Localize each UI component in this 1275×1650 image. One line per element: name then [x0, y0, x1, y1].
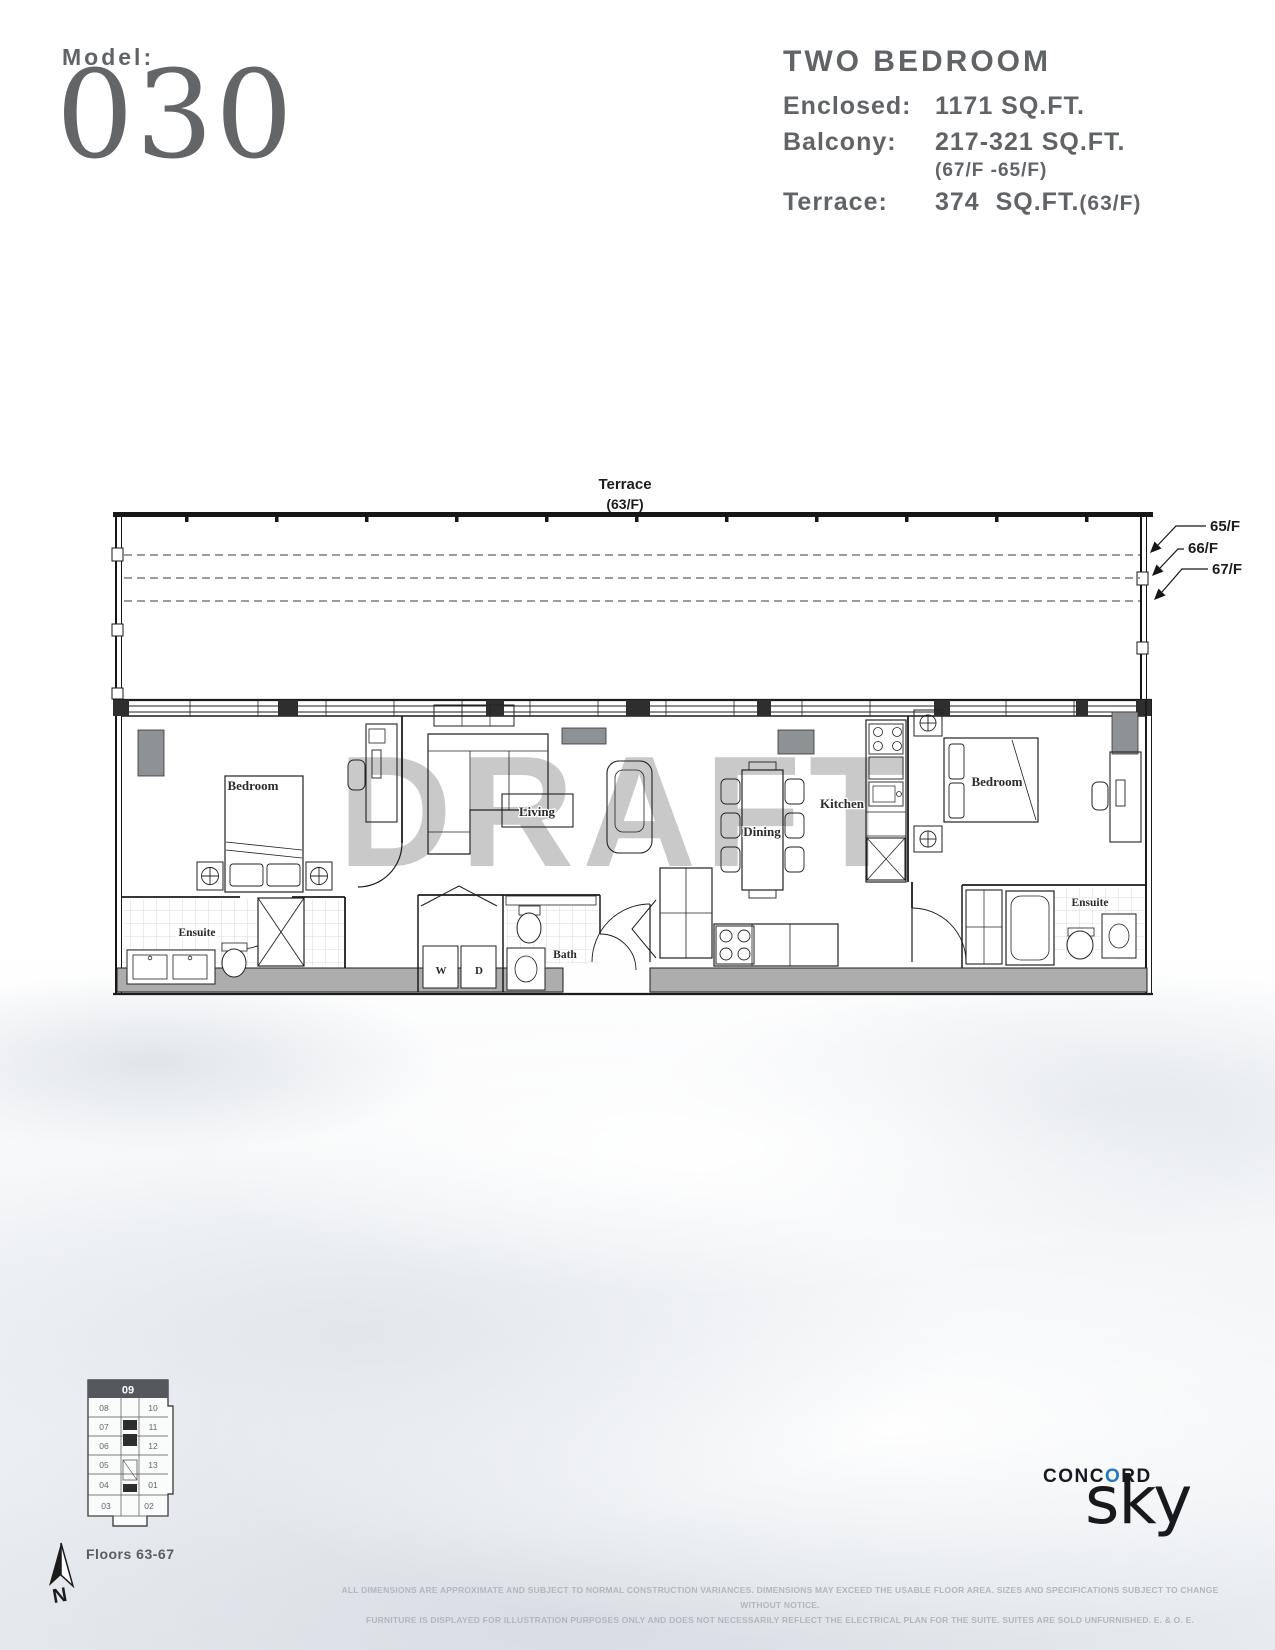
bathtub: [1006, 891, 1054, 965]
enclosed-label: Enclosed:: [783, 92, 935, 121]
balcony-value: 217-321 SQ.FT.: [935, 128, 1125, 157]
terrace-note: (63/F): [1079, 192, 1141, 215]
unit-type-title: TWO BEDROOM: [783, 45, 1051, 79]
disclaimer: ALL DIMENSIONS ARE APPROXIMATE AND SUBJE…: [340, 1583, 1220, 1628]
label-dryer: D: [475, 965, 483, 977]
level-66: 66/F: [1188, 540, 1218, 557]
terrace-label: Terrace:: [783, 188, 935, 217]
cloud-background: [0, 950, 1275, 1650]
toilet-bath: [517, 913, 541, 943]
label-bath: Bath: [553, 949, 577, 961]
key-plan: 09 0810 0711 0612 0513 0401 0302: [83, 1376, 179, 1538]
terrace-value: 374 SQ.FT.(63/F): [935, 188, 1141, 217]
sky-wordmark: sky: [1085, 1470, 1191, 1533]
floor-plan-drawing: DRAFT Terrace (63/F): [105, 440, 1265, 1000]
desk-right: [1110, 752, 1141, 842]
floorplan-page: Model: 030 TWO BEDROOM Enclosed: 1171 SQ…: [0, 0, 1275, 1650]
label-washer: W: [436, 965, 447, 977]
desk-chair-right: [1092, 782, 1108, 810]
spec-table: Enclosed: 1171 SQ.FT. Balcony: 217-321 S…: [783, 92, 1223, 224]
draft-watermark: DRAFT: [338, 724, 913, 900]
svg-text:07: 07: [99, 1422, 109, 1432]
label-ensuite-left: Ensuite: [178, 927, 215, 939]
terrace-ticks: [185, 517, 1089, 522]
balcony-label: Balcony:: [783, 128, 935, 157]
disclaimer-line-1: ALL DIMENSIONS ARE APPROXIMATE AND SUBJE…: [340, 1583, 1220, 1613]
spec-row-terrace: Terrace: 374 SQ.FT.(63/F): [783, 188, 1223, 217]
wall-segments: [113, 700, 1152, 716]
lamp-symbols: [202, 868, 328, 885]
toilet-left: [222, 949, 246, 977]
svg-text:11: 11: [149, 1422, 158, 1432]
svg-text:08: 08: [99, 1403, 109, 1413]
toilet-right: [1067, 931, 1093, 959]
svg-text:01: 01: [148, 1480, 158, 1490]
level-leader-lines: [1158, 526, 1208, 592]
terrace-label: Terrace (63/F): [598, 476, 651, 512]
level-callouts: 65/F 66/F 67/F: [1150, 518, 1242, 600]
svg-text:04: 04: [99, 1480, 109, 1490]
label-dining: Dining: [743, 824, 781, 839]
level-65: 65/F: [1210, 518, 1240, 535]
svg-text:06: 06: [99, 1441, 109, 1451]
north-label: N: [51, 1584, 69, 1606]
spec-row-balcony: Balcony: 217-321 SQ.FT.: [783, 128, 1223, 157]
keyplan-unit-09: 09: [122, 1385, 134, 1397]
label-ensuite-right: Ensuite: [1071, 897, 1108, 909]
label-bedroom-right: Bedroom: [971, 774, 1022, 789]
bed-left: [225, 776, 303, 892]
enclosed-value: 1171 SQ.FT.: [935, 92, 1085, 121]
spec-row-enclosed: Enclosed: 1171 SQ.FT.: [783, 92, 1223, 121]
svg-text:(63/F): (63/F): [606, 496, 643, 512]
svg-text:02: 02: [144, 1501, 154, 1511]
svg-text:05: 05: [99, 1460, 109, 1470]
kitchen-counter: [714, 924, 838, 966]
svg-text:Terrace: Terrace: [598, 476, 651, 493]
lamp-symbols: [920, 715, 936, 847]
floors-range-label: Floors 63-67: [86, 1546, 174, 1562]
north-arrow-icon: N: [40, 1540, 84, 1606]
level-67: 67/F: [1212, 561, 1242, 578]
terrace-level-lines: [124, 555, 1140, 601]
svg-text:03: 03: [101, 1501, 111, 1511]
vanity-right: [1102, 914, 1136, 958]
svg-text:13: 13: [148, 1460, 158, 1470]
svg-text:10: 10: [148, 1403, 158, 1413]
disclaimer-line-2: FURNITURE IS DISPLAYED FOR ILLUSTRATION …: [340, 1613, 1220, 1628]
label-bedroom-left: Bedroom: [227, 778, 278, 793]
balcony-note: (67/F -65/F): [935, 160, 1223, 182]
svg-text:12: 12: [148, 1441, 158, 1451]
label-kitchen: Kitchen: [820, 796, 865, 811]
bath-vanity: [507, 948, 545, 990]
label-living: Living: [519, 804, 556, 819]
model-number: 030: [56, 48, 295, 182]
svg-text:DRAFT: DRAFT: [338, 724, 913, 900]
